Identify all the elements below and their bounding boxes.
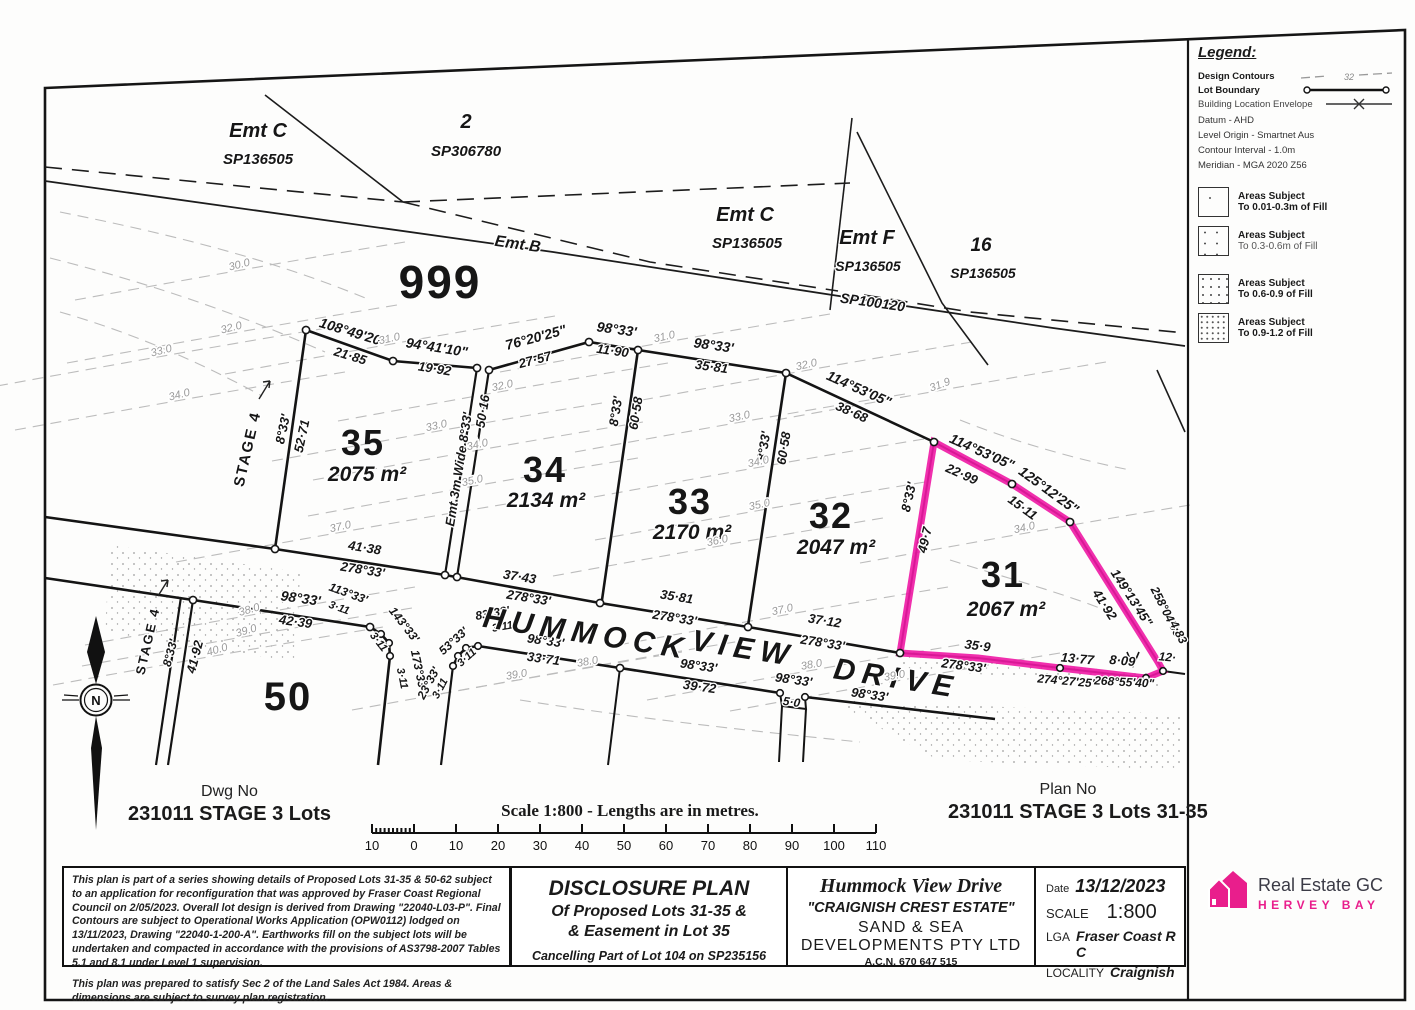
contour-label: 38.0 <box>800 657 824 673</box>
scale-tick-label: 40 <box>575 838 589 853</box>
plan-label: 50 <box>264 675 313 719</box>
plan-label: Emt B <box>494 233 542 256</box>
disclosure-line-1: Of Proposed Lots 31-35 & <box>512 903 786 921</box>
lot-boundary-sample <box>1299 83 1394 97</box>
logo-subtitle: HERVEY BAY <box>1258 898 1383 912</box>
contour-label: 37.0 <box>329 519 353 535</box>
plan-label: Plan No <box>948 781 1188 799</box>
plan-details-box: Date 13/12/2023 SCALE 1:800 LGA Fraser C… <box>1034 866 1186 967</box>
plan-label: 27·57 <box>516 348 554 372</box>
legend-fill-items: Areas Subject To 0.01-0.3m of Fill Areas… <box>1198 187 1394 343</box>
estate-title-box: Hummock View Drive "CRAIGNISH CREST ESTA… <box>786 866 1036 967</box>
developer-name-2: DEVELOPMENTS PTY LTD <box>788 937 1034 955</box>
estate-road-name: Hummock View Drive <box>788 875 1034 898</box>
plan-label: 3·11 <box>455 646 479 669</box>
fill-item-1: Areas Subject To 0.01-0.3m of Fill <box>1198 187 1394 217</box>
lga-row: LGA Fraser Coast R C <box>1046 928 1184 960</box>
contour-label: 39.0 <box>505 667 529 683</box>
plan-label: 38·68 <box>834 398 871 426</box>
contour-label: 33.0 <box>728 409 752 425</box>
legend-title: Legend: <box>1198 44 1394 61</box>
plan-label: 3·11 <box>327 599 351 618</box>
scale-tick-label: 70 <box>701 838 715 853</box>
plan-label: 94°41'10" <box>405 334 469 360</box>
contour-label: 32.0 <box>219 319 244 336</box>
contour-label: 37.0 <box>771 602 795 618</box>
plan-label: 35 <box>341 422 385 463</box>
contour-label: 31.9 <box>928 376 952 395</box>
plan-label: 19·92 <box>417 359 453 379</box>
disclosure-line-2: & Easement in Lot 35 <box>512 923 786 941</box>
plan-notes: This plan is part of a series showing de… <box>62 866 511 967</box>
plan-label: SP136505 <box>712 235 783 252</box>
plan-date: 13/12/2023 <box>1075 876 1165 897</box>
plan-label: 76°20'25" <box>504 321 569 353</box>
date-row: Date 13/12/2023 <box>1046 876 1184 897</box>
plan-label: 278°33' <box>651 607 699 629</box>
plan-label: SP100120 <box>839 290 906 315</box>
developer-name-1: SAND & SEA <box>788 919 1034 937</box>
plan-label: 21·85 <box>331 343 369 368</box>
scale-tick-label: 90 <box>785 838 799 853</box>
contour-line-sample: 32 <box>1299 69 1394 83</box>
plan-label: SP136505 <box>223 151 294 168</box>
legend-meridian: Meridian - MGA 2020 Z56 <box>1198 160 1394 171</box>
plan-lga: Fraser Coast R C <box>1076 928 1184 960</box>
scale-tick-label: 60 <box>659 838 673 853</box>
scale-tick-label: 0 <box>410 838 417 853</box>
plan-label: 999 <box>399 256 482 308</box>
contour-label: 32.0 <box>795 357 819 373</box>
locality-row: LOCALITY Craignish <box>1046 964 1184 980</box>
contour-label: 34.0 <box>1013 520 1037 536</box>
scale-tick-label: 50 <box>617 838 631 853</box>
plan-labels: Emt CSP1365052SP306780Emt B999Emt CSP136… <box>133 111 1191 719</box>
house-icon <box>1206 866 1252 912</box>
fill-item-2: Areas Subject To 0.3-0.6m of Fill <box>1198 226 1394 256</box>
disclosure-title: DISCLOSURE PLAN <box>512 877 786 901</box>
dwg-number-block: Dwg No 231011 STAGE 3 Lots <box>112 783 347 826</box>
dwg-label: Dwg No <box>112 783 347 801</box>
plan-label: 278°33' <box>339 559 387 581</box>
contour-label: 35.0 <box>748 497 772 513</box>
plan-label: 35·81 <box>659 587 694 607</box>
plan-label: SP136505 <box>950 265 1016 281</box>
plan-scale: 1:800 <box>1107 901 1157 924</box>
fill-item-3: Areas Subject To 0.6-0.9 of Fill <box>1198 274 1394 304</box>
contour-label: 38.0 <box>576 654 600 670</box>
plan-label: SP136505 <box>835 258 901 274</box>
legend-building-envelope: Building Location Envelope <box>1198 97 1394 111</box>
scale-caption: Scale 1:800 - Lengths are in metres. <box>430 801 830 821</box>
scale-tick-label: 80 <box>743 838 757 853</box>
plan-label: 2 <box>459 111 471 133</box>
plan-label: 114°53'05" <box>824 367 894 410</box>
legend-panel: Legend: Design Contours 32 Lot Boundary … <box>1198 44 1394 352</box>
plan-label: 37·12 <box>807 611 843 631</box>
plan-label: 35·81 <box>694 357 729 376</box>
plan-label: 2067 m² <box>966 598 1046 621</box>
developer-acn: A.C.N. 670 647 515 <box>788 956 1034 968</box>
plan-label: 268°55'40" <box>1093 673 1155 690</box>
plan-label: Emt F <box>839 227 895 249</box>
plan-label: 12· <box>1158 649 1177 664</box>
plan-label: 3·11 <box>367 630 390 654</box>
disclosure-plan-sheet: N Emt CSP1365052SP306780Emt B999Emt CSP1… <box>0 0 1415 1010</box>
realestate-logo: Real Estate GC HERVEY BAY <box>1206 866 1396 912</box>
plan-label: 143°33' <box>386 604 423 646</box>
plan-label: SP306780 <box>431 143 502 160</box>
plan-label: 5·0 <box>782 694 801 710</box>
plan-locality: Craignish <box>1110 964 1175 980</box>
disclosure-line-3: Cancelling Part of Lot 104 on SP235156 <box>512 949 786 963</box>
notes-paragraph-2: This plan was prepared to satisfy Sec 2 … <box>72 978 501 1006</box>
lot-boundaries <box>45 330 1185 765</box>
plan-label: 8°33' <box>160 637 181 668</box>
scale-tick-label: 10 <box>449 838 463 853</box>
svg-text:N: N <box>91 693 100 708</box>
estate-name: "CRAIGNISH CREST ESTATE" <box>788 900 1034 916</box>
plan-label: 50·16 <box>473 393 493 429</box>
plan-label: 32 <box>809 495 853 536</box>
logo-name: Real Estate GC <box>1258 875 1383 896</box>
parcel-lines <box>45 95 1185 432</box>
plan-label: 41·38 <box>346 537 383 557</box>
plan-label: 8°33' <box>898 480 920 513</box>
svg-text:32: 32 <box>1344 72 1354 82</box>
plan-label: 3·11 <box>394 667 410 690</box>
legend-level-origin: Level Origin - Smartnet Aus <box>1198 130 1394 141</box>
dwg-number: 231011 STAGE 3 Lots <box>112 803 347 826</box>
fill-swatch-1 <box>1198 187 1229 217</box>
plan-label: Emt C <box>229 120 287 142</box>
plan-label: 39·72 <box>682 677 718 697</box>
plan-label: 34 <box>523 449 567 490</box>
plan-label: Emt C <box>716 204 774 226</box>
plan-number-block: Plan No 231011 STAGE 3 Lots 31-35 <box>948 781 1188 824</box>
plan-label: 2075 m² <box>327 463 407 486</box>
fill-swatch-2 <box>1198 226 1229 256</box>
plan-label: 13·77 <box>1060 650 1095 668</box>
plan-label: 8°33' <box>606 394 626 427</box>
plan-label: STAGE 4 <box>231 410 265 489</box>
disclosure-title-box: DISCLOSURE PLAN Of Proposed Lots 31-35 &… <box>510 866 788 967</box>
legend-contour-interval: Contour Interval - 1.0m <box>1198 145 1394 156</box>
plan-label: 33 <box>668 481 712 522</box>
plan-label: 8·09 <box>1109 652 1137 669</box>
plan-label: 98°33' <box>693 334 736 356</box>
contour-label: 34.0 <box>747 454 771 470</box>
scale-tick-label: 10 <box>365 838 379 853</box>
plan-label: 98°33' <box>774 670 814 690</box>
contour-label: 33.0 <box>149 342 174 359</box>
plan-number: 231011 STAGE 3 Lots 31-35 <box>948 801 1188 824</box>
contour-label: 30.0 <box>227 256 252 273</box>
legend-lot-boundary: Lot Boundary <box>1198 83 1394 97</box>
building-envelope-sample <box>1324 97 1394 111</box>
plan-label: 2047 m² <box>796 536 876 559</box>
fill-swatch-3 <box>1198 274 1229 304</box>
scale-tick-label: 100 <box>823 838 845 853</box>
scale-bar: 100102030405060708090100110 <box>365 824 887 853</box>
contour-label: 31.0 <box>653 329 677 345</box>
plan-label: 35·9 <box>964 637 992 655</box>
contour-label: 34.0 <box>167 386 192 403</box>
plan-label: 60·58 <box>626 395 646 431</box>
scale-tick-label: 110 <box>866 838 887 853</box>
fill-swatch-4 <box>1198 313 1229 343</box>
notes-paragraph-1: This plan is part of a series showing de… <box>72 874 501 970</box>
plan-label: 31 <box>981 554 1025 595</box>
plan-label: 98°33' <box>596 318 639 340</box>
plan-label: 278°33' <box>799 632 847 654</box>
plan-label: 16 <box>970 235 992 256</box>
scale-tick-label: 20 <box>491 838 505 853</box>
scale-row: SCALE 1:800 <box>1046 901 1184 924</box>
fill-item-4: Areas Subject To 0.9-1.2 of Fill <box>1198 313 1394 343</box>
legend-datum: Datum - AHD <box>1198 115 1394 126</box>
contour-label: 32.0 <box>491 378 515 394</box>
scale-tick-label: 30 <box>533 838 547 853</box>
plan-label: 33·71 <box>526 649 561 668</box>
contour-label: 33.0 <box>425 418 449 434</box>
plan-label: 11·90 <box>596 341 631 360</box>
legend-design-contours: Design Contours 32 <box>1198 69 1394 83</box>
plan-label: 37·43 <box>502 567 538 587</box>
plan-label: 2134 m² <box>506 489 586 512</box>
